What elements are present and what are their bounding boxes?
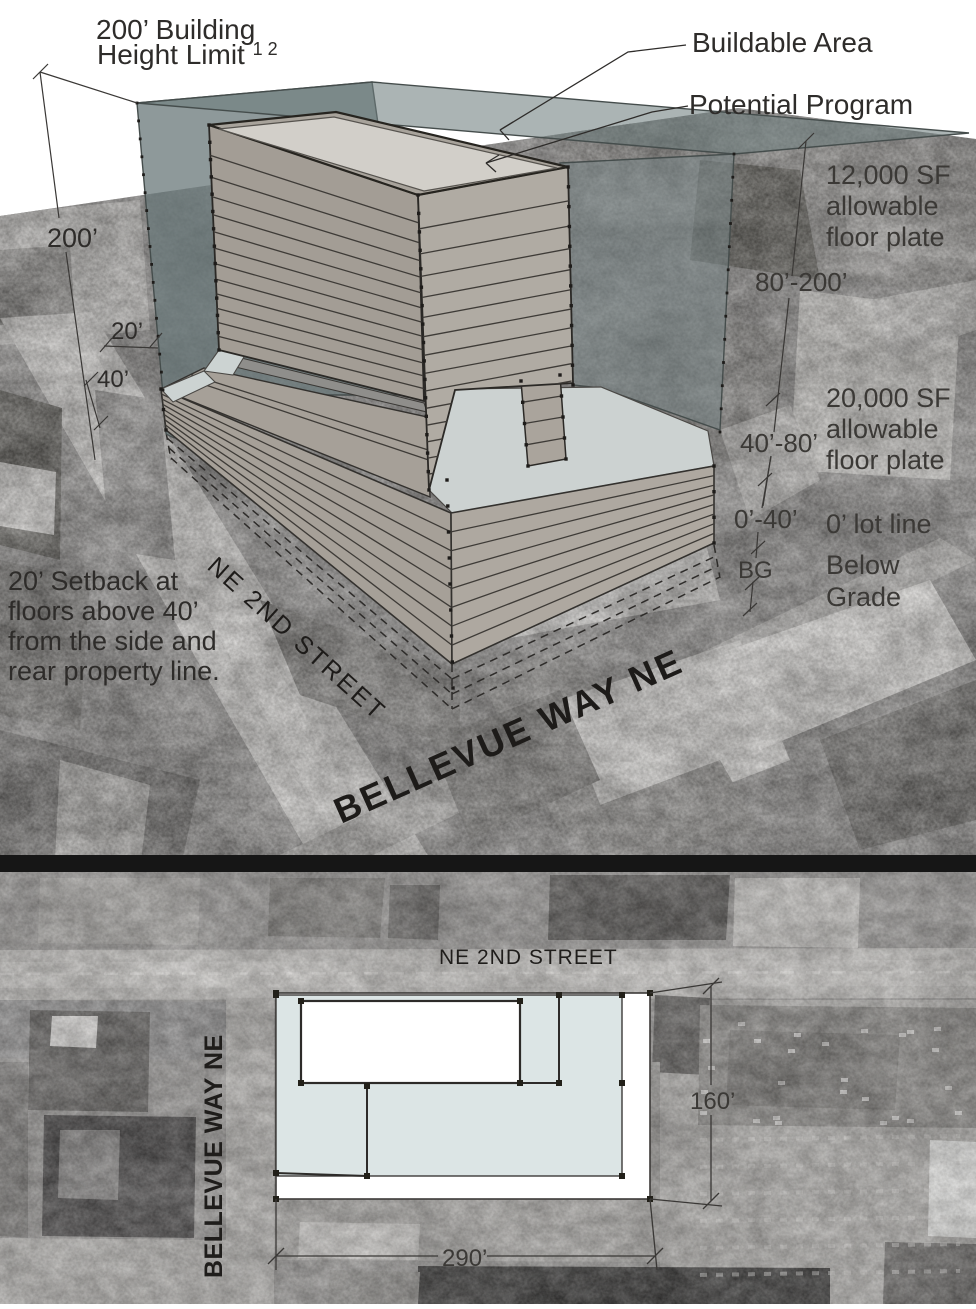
svg-text:floors above 40’: floors above 40’ xyxy=(8,596,199,626)
svg-text:80’-200’: 80’-200’ xyxy=(755,267,848,297)
svg-text:allowable: allowable xyxy=(826,414,939,444)
svg-text:160’: 160’ xyxy=(690,1088,735,1115)
svg-text:Buildable Area: Buildable Area xyxy=(692,27,873,58)
svg-text:Potential Program: Potential Program xyxy=(689,89,913,120)
svg-text:Grade: Grade xyxy=(826,582,901,612)
svg-text:0’ lot line: 0’ lot line xyxy=(826,509,932,539)
svg-text:rear property line.: rear property line. xyxy=(8,656,220,686)
svg-text:NE 2ND STREET: NE 2ND STREET xyxy=(439,946,618,969)
svg-text:from the side and: from the side and xyxy=(8,626,217,656)
svg-text:floor plate: floor plate xyxy=(826,445,945,475)
svg-text:floor plate: floor plate xyxy=(826,222,945,252)
svg-text:40’: 40’ xyxy=(97,366,129,393)
svg-text:Height Limit 1 2: Height Limit 1 2 xyxy=(97,39,278,70)
svg-text:20,000 SF: 20,000 SF xyxy=(826,383,951,413)
svg-text:200’: 200’ xyxy=(47,223,98,253)
svg-text:0’-40’: 0’-40’ xyxy=(734,504,798,534)
svg-text:Below: Below xyxy=(826,550,900,580)
svg-text:20’: 20’ xyxy=(111,318,143,345)
svg-text:20’ Setback at: 20’ Setback at xyxy=(8,566,179,596)
svg-text:40’-80’: 40’-80’ xyxy=(740,428,818,458)
svg-text:BELLEVUE WAY NE: BELLEVUE WAY NE xyxy=(200,1034,228,1278)
svg-text:allowable: allowable xyxy=(826,191,939,221)
svg-text:12,000 SF: 12,000 SF xyxy=(826,160,951,190)
svg-text:290’: 290’ xyxy=(442,1245,487,1272)
svg-text:BG: BG xyxy=(738,557,773,584)
